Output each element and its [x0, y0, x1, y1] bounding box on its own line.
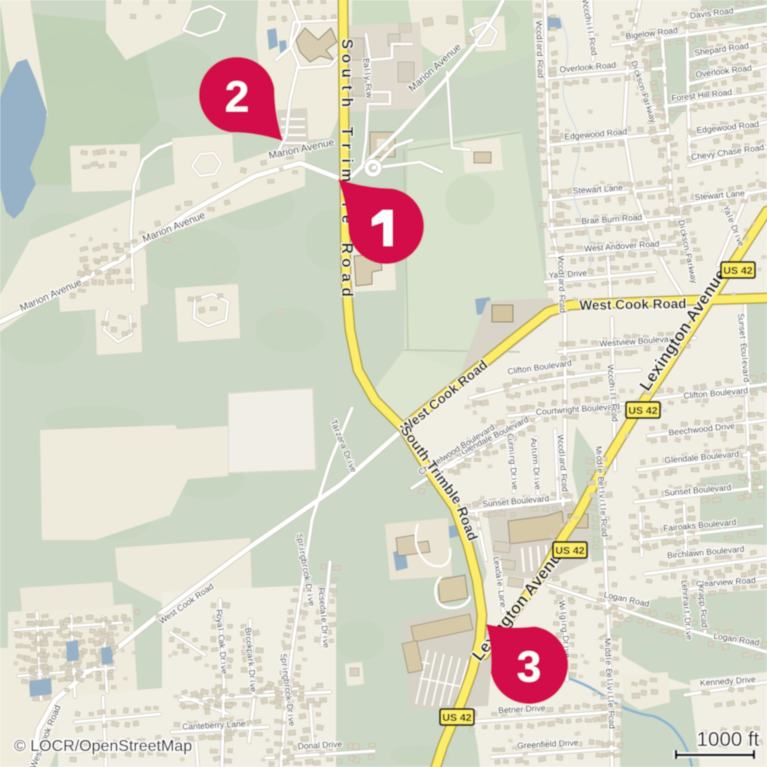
- svg-text:d: d: [558, 308, 568, 313]
- svg-text:© LOCR/OpenStreetMap: © LOCR/OpenStreetMap: [14, 738, 192, 755]
- svg-text:d: d: [603, 652, 613, 658]
- svg-text:u: u: [338, 68, 355, 77]
- svg-text:d: d: [535, 52, 545, 57]
- svg-text:h: h: [338, 98, 355, 107]
- svg-text:R: R: [338, 243, 355, 254]
- svg-text:t: t: [338, 85, 355, 90]
- svg-text:e: e: [596, 481, 606, 487]
- svg-text:d: d: [536, 73, 546, 78]
- svg-text:d: d: [557, 270, 567, 275]
- svg-text:a: a: [338, 273, 355, 282]
- svg-text:e: e: [606, 703, 616, 709]
- svg-text:S: S: [338, 39, 355, 49]
- svg-text:d: d: [535, 35, 545, 40]
- svg-text:d: d: [595, 460, 605, 466]
- svg-text:e: e: [604, 673, 614, 679]
- svg-text:1000 ft: 1000 ft: [697, 728, 760, 751]
- svg-text:o: o: [338, 54, 355, 63]
- svg-text:d: d: [338, 287, 355, 296]
- svg-text:US 42: US 42: [723, 265, 752, 277]
- svg-text:r: r: [338, 143, 355, 149]
- svg-text:d: d: [557, 287, 567, 292]
- svg-text:US 42: US 42: [442, 712, 471, 724]
- svg-text:i: i: [338, 159, 355, 163]
- svg-text:3: 3: [517, 643, 541, 692]
- svg-text:West Cook Road: West Cook Road: [579, 296, 686, 313]
- svg-text:e: e: [598, 510, 608, 516]
- svg-text:e: e: [604, 660, 614, 666]
- svg-text:o: o: [338, 258, 355, 267]
- svg-text:d: d: [607, 724, 617, 730]
- svg-text:US 42: US 42: [628, 405, 657, 417]
- svg-text:T: T: [338, 127, 355, 137]
- svg-text:US 42: US 42: [555, 545, 584, 557]
- svg-text:e: e: [595, 468, 605, 474]
- svg-text:d: d: [600, 532, 610, 538]
- svg-text:2: 2: [225, 73, 249, 122]
